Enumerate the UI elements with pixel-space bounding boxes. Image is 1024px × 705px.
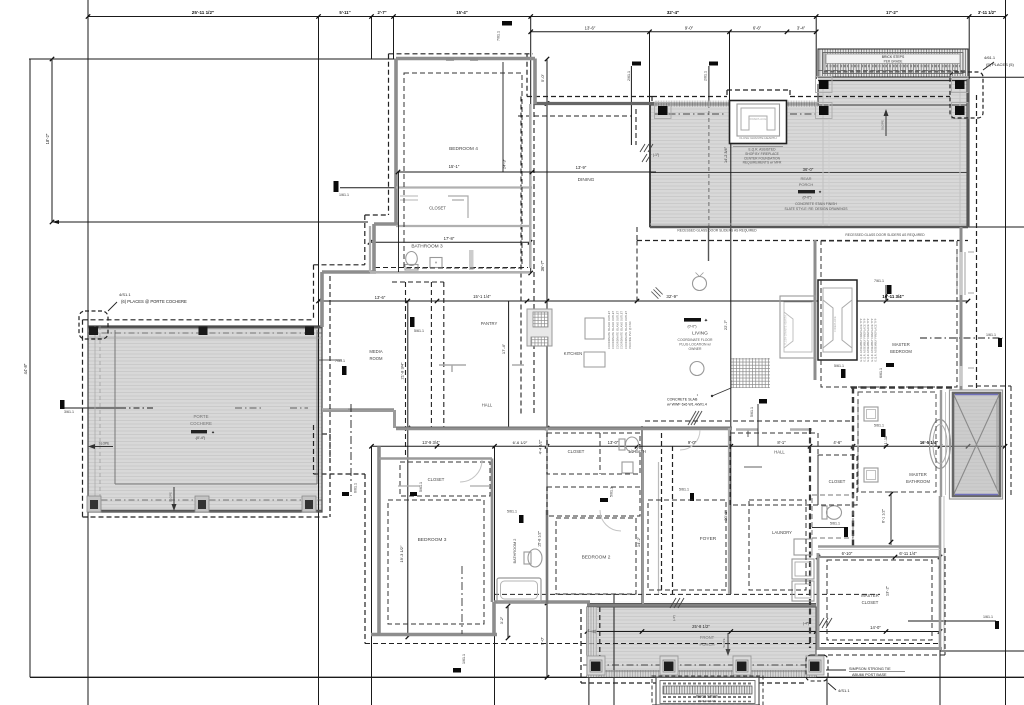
svg-text:36'-7″: 36'-7″ <box>540 260 545 271</box>
svg-text:LIVING: LIVING <box>692 331 708 337</box>
svg-text:COORDINATE ISLAND OUTLET: COORDINATE ISLAND OUTLET <box>620 311 624 350</box>
svg-text:SLATE STYLE: RE: DESIGN DRAWIN: SLATE STYLE: RE: DESIGN DRAWINGS <box>784 207 848 211</box>
svg-text:13'-2″: 13'-2″ <box>885 585 890 596</box>
svg-text:COORDINATE ISLAND OUTLET: COORDINATE ISLAND OUTLET <box>607 311 611 350</box>
svg-text:6'-11 1/4″: 6'-11 1/4″ <box>899 551 917 556</box>
svg-text:5/61.1: 5/61.1 <box>830 522 840 526</box>
svg-text:REQUIREMENTS w/ MFR: REQUIREMENTS w/ MFR <box>743 161 782 165</box>
svg-text:PROVIDE PVC @ FND: PROVIDE PVC @ FND <box>628 321 632 348</box>
svg-text:RECESSED GLASS DOOR SLIDERS AS: RECESSED GLASS DOOR SLIDERS AS REQUIRED <box>677 229 757 233</box>
svg-text:SLOPE: SLOPE <box>881 120 885 130</box>
svg-text:24'-3″: 24'-3″ <box>502 158 507 169</box>
svg-text:4/61.1: 4/61.1 <box>984 55 996 60</box>
svg-text:CLOSET: CLOSET <box>862 600 879 605</box>
svg-text:7/61.1: 7/61.1 <box>497 31 501 41</box>
svg-text:E.Q.R. ASSEMBLY FIREPLACE TYP: E.Q.R. ASSEMBLY FIREPLACE TYP <box>873 318 877 361</box>
svg-text:21'-8 3/4″: 21'-8 3/4″ <box>400 362 405 379</box>
svg-text:E.Q.R. ASSEMBLY FIREPLACE TYP: E.Q.R. ASSEMBLY FIREPLACE TYP <box>870 318 874 361</box>
svg-text:32'-4″: 32'-4″ <box>667 10 680 15</box>
svg-text:SLOPE: SLOPE <box>99 442 110 446</box>
svg-text:BATHROOM 2: BATHROOM 2 <box>513 539 517 564</box>
svg-text:PLUG LOCATION w/: PLUG LOCATION w/ <box>679 343 711 347</box>
svg-text:(-4″): (-4″) <box>672 615 676 621</box>
svg-text:ABU66 POST BASE: ABU66 POST BASE <box>852 673 887 677</box>
svg-text:4/S1.1: 4/S1.1 <box>838 688 850 693</box>
svg-text:CONCRETE STAIN FINISH: CONCRETE STAIN FINISH <box>795 202 837 206</box>
svg-text:E.Q.R. ASSISTED: E.Q.R. ASSISTED <box>749 148 777 152</box>
svg-text:PER GRADE: PER GRADE <box>698 699 716 703</box>
svg-text:FIREPLACE: FIREPLACE <box>750 117 767 121</box>
svg-text:BATHROOM 3: BATHROOM 3 <box>411 244 443 250</box>
svg-text:(0'-0″): (0'-0″) <box>802 196 811 200</box>
svg-text:15'-4″: 15'-4″ <box>456 10 467 15</box>
svg-text:CLOSET: CLOSET <box>568 449 585 454</box>
svg-text:PORCH: PORCH <box>799 182 814 187</box>
svg-text:CONCRETE SLAB: CONCRETE SLAB <box>667 398 698 402</box>
svg-text:ROOM: ROOM <box>369 356 383 361</box>
svg-text:OWNER: OWNER <box>689 347 703 351</box>
svg-text:5'-0″: 5'-0″ <box>540 73 545 82</box>
svg-text:✦: ✦ <box>818 190 822 195</box>
svg-text:13'-6″: 13'-6″ <box>375 295 386 300</box>
svg-text:2'-7″: 2'-7″ <box>377 10 386 15</box>
svg-text:MEDIA: MEDIA <box>369 349 382 354</box>
svg-text:13'-6″: 13'-6″ <box>585 26 596 31</box>
svg-text:✦: ✦ <box>704 318 708 324</box>
svg-text:6/61.1: 6/61.1 <box>879 368 883 378</box>
svg-text:HALL: HALL <box>482 403 493 408</box>
svg-text:2/61.1: 2/61.1 <box>627 71 631 81</box>
svg-text:1/61.1: 1/61.1 <box>986 333 996 337</box>
svg-text:13'-9″: 13'-9″ <box>576 165 587 170</box>
svg-text:(-1″): (-1″) <box>653 153 659 157</box>
svg-text:17'-2″: 17'-2″ <box>886 10 899 15</box>
svg-text:BATHROOM: BATHROOM <box>906 479 930 484</box>
svg-text:4'-6″: 4'-6″ <box>833 440 842 445</box>
svg-text:SHOP BY FIREPLACE: SHOP BY FIREPLACE <box>745 152 780 156</box>
svg-text:19'-3 1/2″: 19'-3 1/2″ <box>399 545 404 562</box>
svg-text:3'-11 1/2″: 3'-11 1/2″ <box>978 10 996 15</box>
svg-text:CLOSET: CLOSET <box>829 479 846 484</box>
svg-text:5/61.1: 5/61.1 <box>507 510 517 514</box>
svg-text:SIMPSON STRONG TIE: SIMPSON STRONG TIE <box>849 667 891 671</box>
svg-text:LAUNDRY: LAUNDRY <box>772 530 792 535</box>
svg-text:3/61.1: 3/61.1 <box>64 410 74 414</box>
svg-text:SLOPE: SLOPE <box>169 492 173 502</box>
svg-text:13'-9 3/4″: 13'-9 3/4″ <box>422 440 440 445</box>
svg-text:CLOSET: CLOSET <box>428 477 445 482</box>
svg-text:32'-9″: 32'-9″ <box>666 294 678 299</box>
svg-text:COORDINATE ISLAND OUTLET: COORDINATE ISLAND OUTLET <box>611 311 615 350</box>
svg-text:14'-0″: 14'-0″ <box>870 625 881 630</box>
svg-text:16'-5 1/4″: 16'-5 1/4″ <box>920 440 938 445</box>
svg-text:KITCHEN: KITCHEN <box>564 351 582 356</box>
svg-text:5'-11″: 5'-11″ <box>339 10 350 15</box>
svg-text:FIREPLACE: FIREPLACE <box>833 316 837 332</box>
svg-text:6'-6 1/2″: 6'-6 1/2″ <box>513 440 528 445</box>
svg-text:MASTER: MASTER <box>892 342 909 347</box>
svg-text:17'-4″: 17'-4″ <box>501 343 506 354</box>
svg-text:13'-0″: 13'-0″ <box>608 440 619 445</box>
svg-text:BEDROOM: BEDROOM <box>890 349 912 354</box>
svg-text:COORDINATE FLOOR: COORDINATE FLOOR <box>678 338 714 342</box>
svg-text:PER GRADE: PER GRADE <box>884 59 903 63</box>
svg-text:4/S1.1: 4/S1.1 <box>119 292 131 297</box>
svg-text:25'-11 1/2″: 25'-11 1/2″ <box>192 10 215 15</box>
svg-text:w/ WWF 6x6 W1.4xW1.4: w/ WWF 6x6 W1.4xW1.4 <box>667 403 707 407</box>
svg-text:-(0'-4″): -(0'-4″) <box>195 436 205 440</box>
svg-text:BEDROOM 2: BEDROOM 2 <box>582 555 611 561</box>
svg-text:(5) PLACES (5): (5) PLACES (5) <box>986 62 1014 67</box>
svg-text:6'-6″: 6'-6″ <box>753 26 762 31</box>
svg-text:3'-2″: 3'-2″ <box>500 616 504 624</box>
svg-text:E.Q.R. ASSEMBLY FIREPLACE TYP: E.Q.R. ASSEMBLY FIREPLACE TYP <box>859 318 863 361</box>
svg-text:✦: ✦ <box>211 430 215 435</box>
svg-text:1/61.1: 1/61.1 <box>339 193 349 197</box>
svg-text:16'-11 3/4″: 16'-11 3/4″ <box>882 294 904 299</box>
svg-text:E.Q.R. ASSEMBLY FIREPLACE TYP: E.Q.R. ASSEMBLY FIREPLACE TYP <box>866 318 870 361</box>
svg-text:14'-2 3/4″: 14'-2 3/4″ <box>724 146 728 163</box>
svg-text:4'-4 1/2″: 4'-4 1/2″ <box>538 439 543 454</box>
svg-text:MASTER: MASTER <box>909 472 926 477</box>
svg-text:6/61.1: 6/61.1 <box>354 483 358 493</box>
svg-text:FLUSH GRANITE HEARTH: FLUSH GRANITE HEARTH <box>785 315 788 345</box>
svg-text:15'-8 1/2″: 15'-8 1/2″ <box>538 530 542 547</box>
svg-text:9'-0″: 9'-0″ <box>688 440 697 445</box>
svg-text:REAR: REAR <box>800 176 811 181</box>
svg-text:3'-4″: 3'-4″ <box>797 26 806 31</box>
svg-text:HALL: HALL <box>774 450 785 455</box>
svg-text:22'-7″: 22'-7″ <box>723 319 728 330</box>
svg-text:FRONT: FRONT <box>700 635 715 640</box>
svg-text:FOYER: FOYER <box>700 536 717 542</box>
svg-text:9'-0″: 9'-0″ <box>540 636 545 645</box>
svg-text:6'-10″: 6'-10″ <box>842 551 853 556</box>
svg-text:(-4″): (-4″) <box>803 622 809 626</box>
svg-text:PANTRY: PANTRY <box>481 321 498 326</box>
svg-text:15'-1″: 15'-1″ <box>449 164 460 169</box>
svg-text:18'-2″: 18'-2″ <box>45 133 50 144</box>
svg-text:5/61.1: 5/61.1 <box>834 364 844 368</box>
svg-text:44'-8″: 44'-8″ <box>23 363 28 374</box>
svg-text:1/61.1: 1/61.1 <box>983 615 993 619</box>
svg-text:15'-1 1/4″: 15'-1 1/4″ <box>473 294 491 299</box>
svg-text:5/61.1: 5/61.1 <box>610 487 614 497</box>
svg-text:DINING: DINING <box>578 177 595 183</box>
svg-text:COORDINATE ISLAND OUTLET: COORDINATE ISLAND OUTLET <box>624 311 628 350</box>
svg-text:5/61.1: 5/61.1 <box>414 329 424 333</box>
svg-text:7/61.1: 7/61.1 <box>874 279 884 283</box>
svg-text:1/61.1: 1/61.1 <box>462 654 466 664</box>
svg-text:PORCH: PORCH <box>699 642 714 647</box>
svg-text:FLUSH GRANITE HEARTH: FLUSH GRANITE HEARTH <box>739 136 776 140</box>
svg-text:PORTE: PORTE <box>193 414 208 419</box>
svg-text:2/61.1: 2/61.1 <box>704 71 708 81</box>
svg-text:CLOSET: CLOSET <box>429 206 446 211</box>
svg-text:36'-0″: 36'-0″ <box>803 167 814 172</box>
svg-text:5/61.1: 5/61.1 <box>679 488 689 492</box>
svg-text:COCHERE: COCHERE <box>190 421 212 426</box>
svg-text:8'-1″: 8'-1″ <box>777 440 786 445</box>
svg-text:6'-1 1/2″: 6'-1 1/2″ <box>882 508 886 523</box>
svg-text:25'-8 1/2″: 25'-8 1/2″ <box>692 624 710 629</box>
svg-text:5/61.1: 5/61.1 <box>419 482 423 492</box>
svg-text:CENTER FOUNDATION: CENTER FOUNDATION <box>744 156 781 160</box>
svg-text:BEDROOM 4: BEDROOM 4 <box>449 146 478 152</box>
svg-text:14'-2″: 14'-2″ <box>636 536 641 547</box>
svg-text:(0'-0″): (0'-0″) <box>687 325 696 329</box>
svg-text:17'-8″: 17'-8″ <box>444 236 455 241</box>
svg-text:5/61.1: 5/61.1 <box>750 407 754 417</box>
svg-text:5/61.1: 5/61.1 <box>874 424 884 428</box>
svg-text:RECESSED GLASS DOOR SLIDERS AS: RECESSED GLASS DOOR SLIDERS AS REQUIRED <box>845 233 925 237</box>
svg-text:COORDINATE ISLAND OUTLET: COORDINATE ISLAND OUTLET <box>615 311 619 350</box>
svg-text:E.Q.R. ASSEMBLY FIREPLACE TYP: E.Q.R. ASSEMBLY FIREPLACE TYP <box>863 318 867 361</box>
svg-text:SLOPE: SLOPE <box>722 638 726 647</box>
svg-text:(6) PLACES @ PORTE COCHERE: (6) PLACES @ PORTE COCHERE <box>121 299 187 304</box>
svg-text:9'-0″: 9'-0″ <box>685 26 694 31</box>
svg-text:BEDROOM 3: BEDROOM 3 <box>418 537 447 543</box>
svg-text:MASTER: MASTER <box>861 593 878 598</box>
